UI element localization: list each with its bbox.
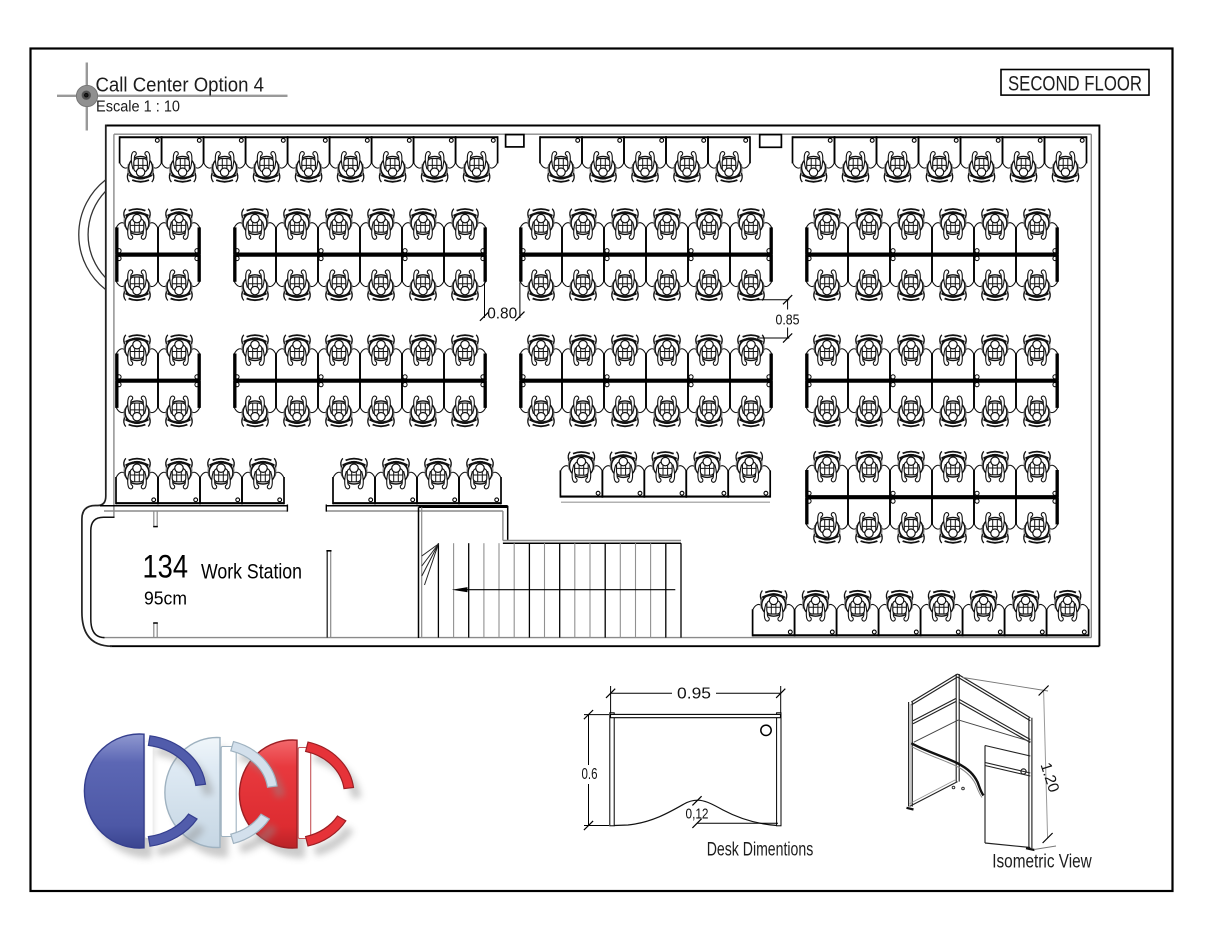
svg-text:95cm: 95cm xyxy=(144,589,187,609)
svg-text:Desk Dimentions: Desk Dimentions xyxy=(707,839,814,861)
svg-text:0.95: 0.95 xyxy=(677,686,711,703)
svg-text:Isometric View: Isometric View xyxy=(992,852,1092,873)
svg-text:1.20: 1.20 xyxy=(1037,761,1063,795)
svg-text:0.85: 0.85 xyxy=(776,312,800,329)
svg-text:Escale 1 : 10: Escale 1 : 10 xyxy=(96,99,180,116)
svg-text:SECOND FLOOR: SECOND FLOOR xyxy=(1008,73,1142,96)
svg-text:0.80: 0.80 xyxy=(487,306,517,323)
svg-text:Work Station: Work Station xyxy=(201,561,302,584)
svg-text:0.6: 0.6 xyxy=(582,766,598,783)
svg-text:Call Center Option 4: Call Center Option 4 xyxy=(96,75,265,97)
svg-text:0,12: 0,12 xyxy=(686,805,709,822)
svg-text:134: 134 xyxy=(143,548,189,584)
